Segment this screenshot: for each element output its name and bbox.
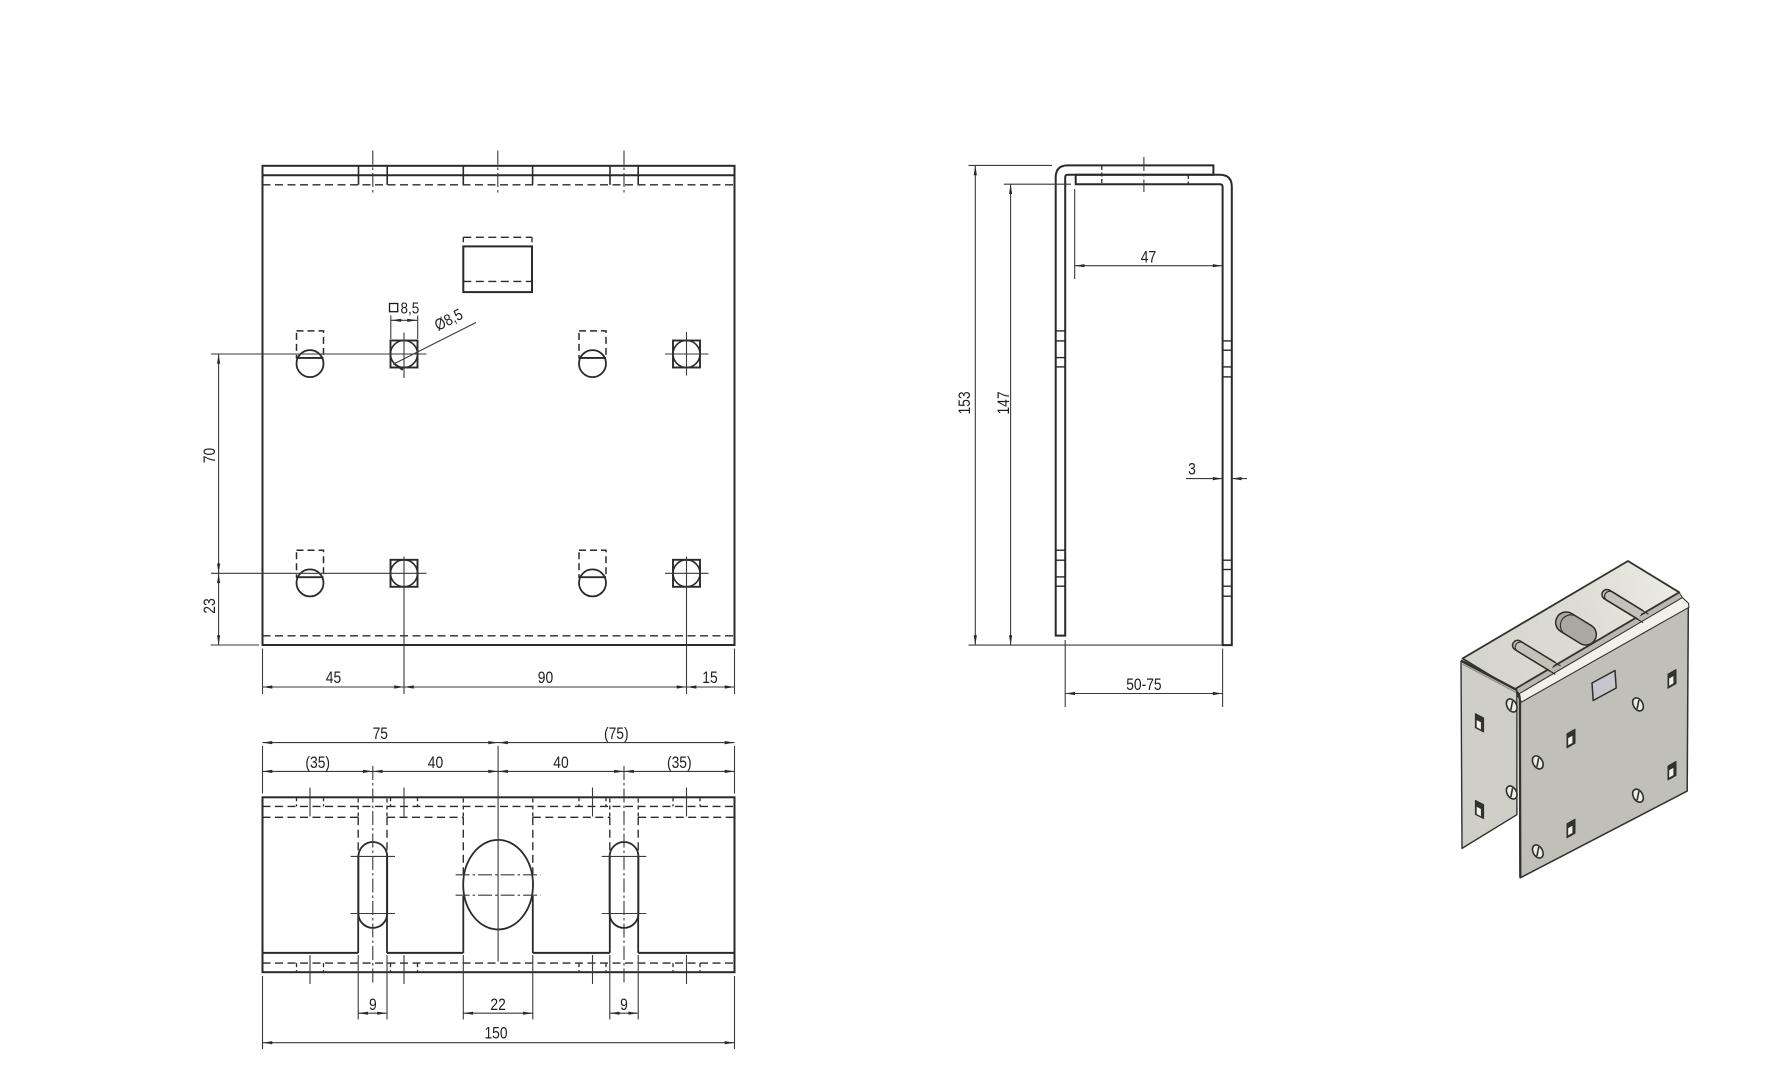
svg-text:47: 47 [1141,248,1156,266]
svg-text:22: 22 [490,996,505,1014]
svg-text:(35): (35) [305,754,330,772]
svg-text:150: 150 [484,1024,507,1042]
svg-text:23: 23 [201,598,219,613]
svg-text:8,5: 8,5 [401,301,420,318]
svg-text:153: 153 [956,391,974,414]
svg-text:15: 15 [702,669,717,687]
svg-text:(35): (35) [667,754,692,772]
svg-text:90: 90 [538,669,553,687]
svg-text:3: 3 [1188,460,1196,478]
svg-text:9: 9 [620,996,628,1014]
svg-text:40: 40 [553,754,568,772]
svg-text:40: 40 [428,754,443,772]
svg-text:9: 9 [369,996,377,1014]
svg-text:45: 45 [326,669,341,687]
svg-text:50-75: 50-75 [1126,676,1161,694]
svg-text:147: 147 [995,391,1013,414]
svg-text:75: 75 [373,725,388,743]
svg-text:70: 70 [201,448,219,463]
svg-text:(75): (75) [604,725,629,743]
